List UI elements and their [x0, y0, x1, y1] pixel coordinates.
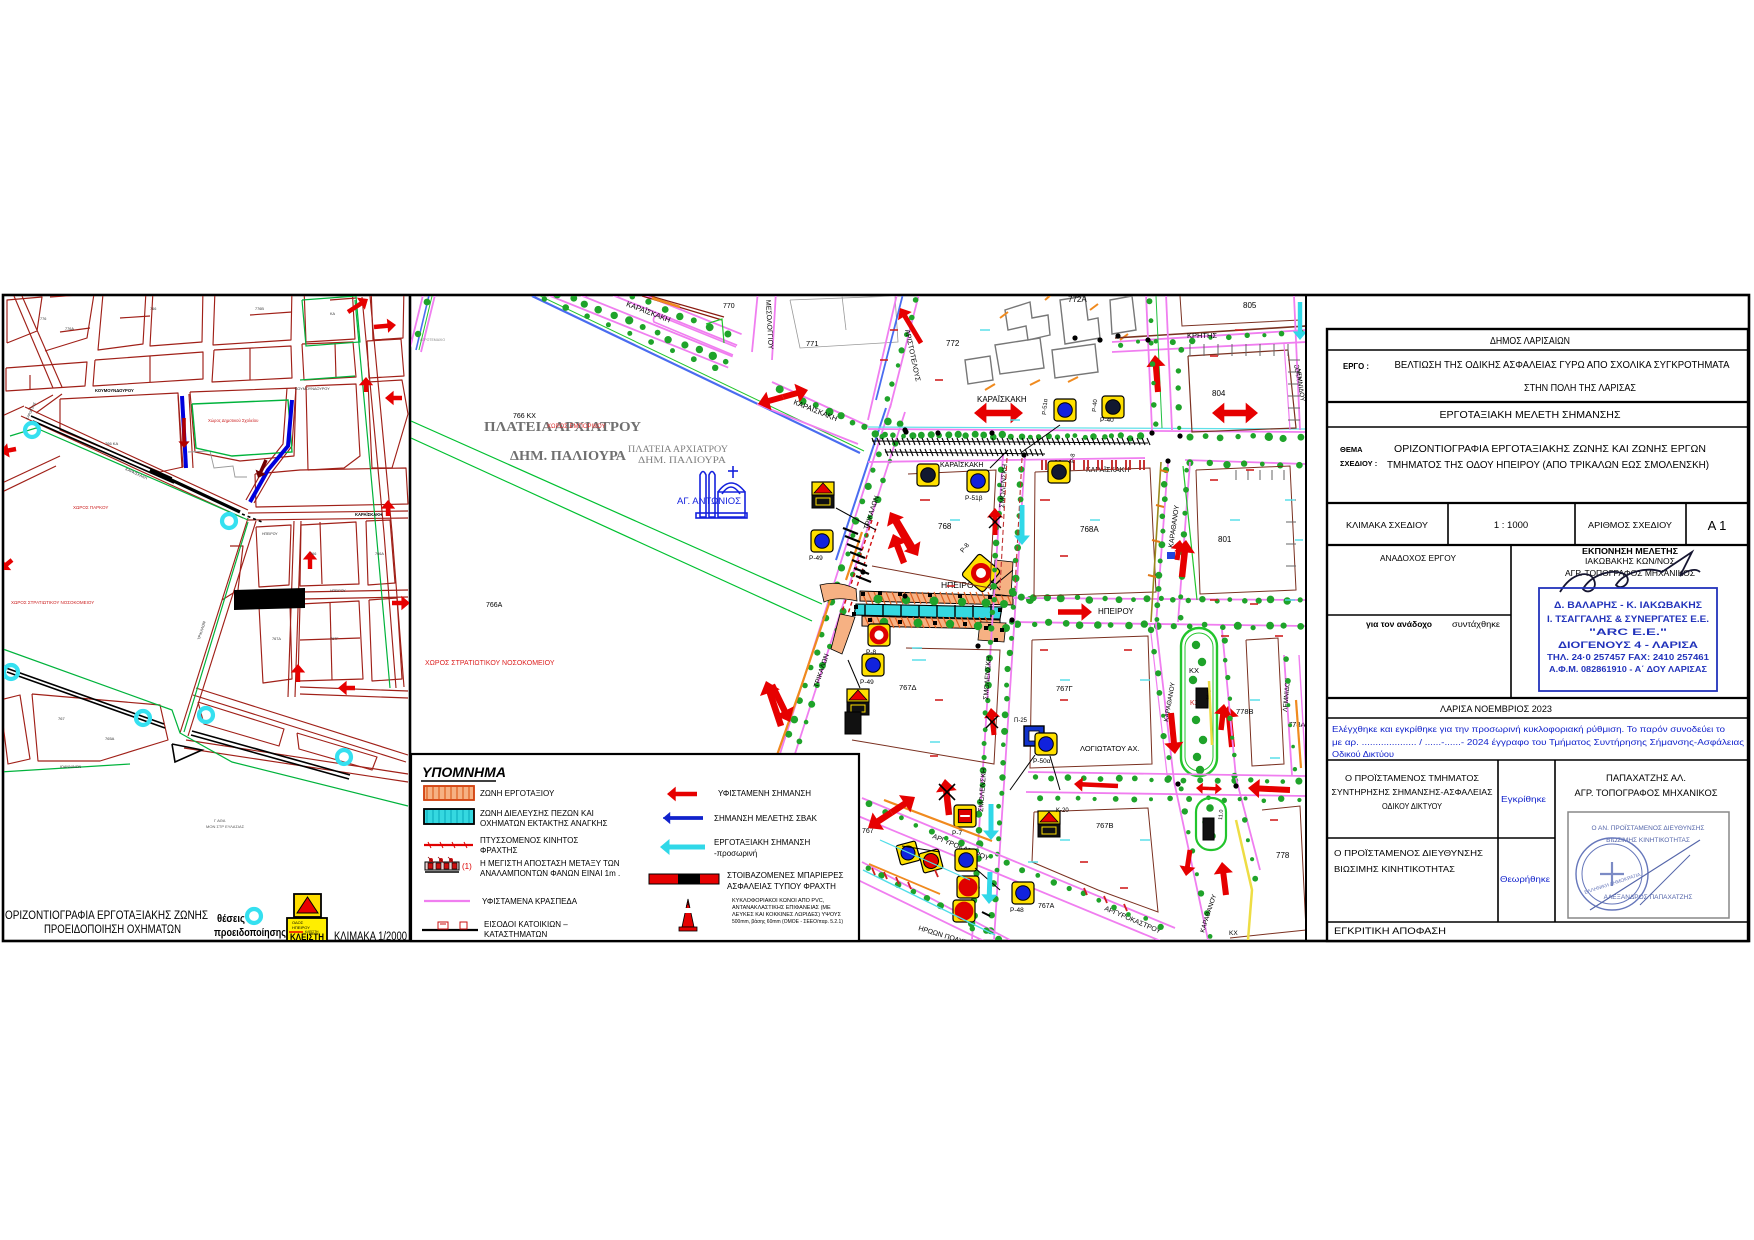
- svg-text:ΜΟΝ ΣΤΡ ΕΥΛΑΣΙΑΣ: ΜΟΝ ΣΤΡ ΕΥΛΑΣΙΑΣ: [206, 824, 245, 829]
- svg-text:Ο ΠΡΟΪΣΤΑΜΕΝΟΣ ΤΜΗΜΑΤΟΣ: Ο ΠΡΟΪΣΤΑΜΕΝΟΣ ΤΜΗΜΑΤΟΣ: [1345, 773, 1479, 783]
- svg-text:θέσεις: θέσεις: [217, 913, 245, 925]
- svg-text:ΠΡΟΕΙΔΟΠΟΙΗΣΗ ΟΧΗΜΑΤΩΝ: ΠΡΟΕΙΔΟΠΟΙΗΣΗ ΟΧΗΜΑΤΩΝ: [44, 922, 181, 936]
- svg-text:ΑΝΑΛΑΜΠΟΝΤΩΝ ΦΑΝΩΝ ΕΙΝΑΙ 1m .: ΑΝΑΛΑΜΠΟΝΤΩΝ ΦΑΝΩΝ ΕΙΝΑΙ 1m .: [480, 869, 620, 878]
- svg-text:ΕΓΚΡΙΤΙΚΗ ΑΠΟΦΑΣΗ: ΕΓΚΡΙΤΙΚΗ ΑΠΟΦΑΣΗ: [1334, 926, 1446, 937]
- svg-text:ΣΤΗΝ ΠΟΛΗ ΤΗΣ ΛΑΡΙΣΑΣ: ΣΤΗΝ ΠΟΛΗ ΤΗΣ ΛΑΡΙΣΑΣ: [1524, 382, 1636, 394]
- svg-text:ΣΧΕΔΙΟΥ :: ΣΧΕΔΙΟΥ :: [1340, 459, 1377, 468]
- svg-text:Ρ-50α: Ρ-50α: [1033, 758, 1051, 765]
- svg-text:ΚΑΡΑΪΣΚΑΚΗ: ΚΑΡΑΪΣΚΑΚΗ: [355, 512, 382, 517]
- svg-text:ΒΙΩΣΙΜΗΣ ΚΙΝΗΤΙΚΟΤΗΤΑΣ: ΒΙΩΣΙΜΗΣ ΚΙΝΗΤΙΚΟΤΗΤΑΣ: [1334, 864, 1455, 874]
- svg-text:Ρ-49: Ρ-49: [809, 555, 823, 562]
- svg-text:ΗΠΕΙΡΟΥ: ΗΠΕΙΡΟΥ: [262, 532, 278, 536]
- svg-text:ΖΩΝΗ ΕΡΓΟΤΑΞΙΟΥ: ΖΩΝΗ ΕΡΓΟΤΑΞΙΟΥ: [480, 789, 555, 798]
- svg-text:ΟΡΙΖΟΝΤΙΟΓΡΑΦΙΑ ΕΡΓΟΤΑΞΙΑΚΗΣ: ΟΡΙΖΟΝΤΙΟΓΡΑΦΙΑ ΕΡΓΟΤΑΞΙΑΚΗΣ ΖΩΝΗΣ: [5, 908, 208, 922]
- svg-text:767: 767: [58, 716, 65, 721]
- svg-text:ΚΧ: ΚΧ: [1229, 930, 1238, 937]
- svg-text:Οδικού Δικτύου: Οδικού Δικτύου: [1332, 749, 1394, 759]
- svg-text:776Α: 776Α: [65, 327, 74, 331]
- svg-text:ΗΠΕΙΡΟΥ: ΗΠΕΙΡΟΥ: [330, 589, 346, 593]
- svg-text:ΚΑΤΑΣΤΗΜΑΤΩΝ: ΚΑΤΑΣΤΗΜΑΤΩΝ: [484, 930, 547, 939]
- svg-text:778Β: 778Β: [1236, 707, 1254, 716]
- svg-text:778: 778: [1276, 851, 1290, 860]
- svg-text:ΟΔΙΚΟΥ ΔΙΚΤΥΟΥ: ΟΔΙΚΟΥ ΔΙΚΤΥΟΥ: [1382, 801, 1442, 811]
- svg-text:766: 766: [310, 552, 316, 556]
- svg-text:ΖΩΝΗ ΔΙΕΛΕΥΣΗΣ ΠΕΖΩΝ ΚΑΙ: ΖΩΝΗ ΔΙΕΛΕΥΣΗΣ ΠΕΖΩΝ ΚΑΙ: [480, 809, 594, 818]
- svg-text:ΑΛΕΞΑΝΔΡΟΣ ΠΑΠΑΧΑΤΖΗΣ: ΑΛΕΞΑΝΔΡΟΣ ΠΑΠΑΧΑΤΖΗΣ: [1604, 894, 1693, 901]
- svg-text:Ρ-51β: Ρ-51β: [965, 495, 983, 502]
- svg-text:ΒΕΛΤΙΩΣΗ ΤΗΣ ΟΔΙΚΗΣ ΑΣΦΑΛΕΙΑΣ: ΒΕΛΤΙΩΣΗ ΤΗΣ ΟΔΙΚΗΣ ΑΣΦΑΛΕΙΑΣ ΓΥΡΩ ΑΠΟ Σ…: [1395, 359, 1730, 371]
- svg-text:Ρ-40: Ρ-40: [1092, 398, 1099, 412]
- svg-text:Α.Φ.Μ. 082861910 - Α΄ ΔΟΥ ΛΑΡ: Α.Φ.Μ. 082861910 - Α΄ ΔΟΥ ΛΑΡΙΣΑΣ: [1549, 665, 1707, 674]
- svg-text:ΑΝΤΑΝΑΚΛΑΣΤΙΚΗΣ ΕΠΙΦΑΝΕΙΑΣ (ΜΕ: ΑΝΤΑΝΑΚΛΑΣΤΙΚΗΣ ΕΠΙΦΑΝΕΙΑΣ (ΜΕ: [732, 905, 831, 911]
- svg-text:ΔΗΜ. ΠΑΛΙΟΥΡΑ: ΔΗΜ. ΠΑΛΙΟΥΡΑ: [638, 455, 727, 465]
- svg-text:767Β: 767Β: [1096, 821, 1114, 830]
- svg-text:ΔΗΜΟΣ ΛΑΡΙΣΑΙΩΝ: ΔΗΜΟΣ ΛΑΡΙΣΑΙΩΝ: [1490, 336, 1570, 347]
- svg-text:767Δ: 767Δ: [899, 683, 917, 692]
- svg-text:ΣΥΝΤΗΡΗΣΗΣ ΣΗΜΑΝΣΗΣ-ΑΣΦΑΛΕΙΑΣ: ΣΥΝΤΗΡΗΣΗΣ ΣΗΜΑΝΣΗΣ-ΑΣΦΑΛΕΙΑΣ: [1332, 787, 1493, 797]
- svg-text:ΕΙΣΟΔΟΙ ΚΑΤΟΙΚΙΩΝ –: ΕΙΣΟΔΟΙ ΚΑΤΟΙΚΙΩΝ –: [484, 920, 568, 929]
- svg-text:προειδοποίησης: προειδοποίησης: [214, 927, 286, 939]
- svg-text:Π-25: Π-25: [1014, 718, 1028, 724]
- svg-text:για τον ανάδοχο: για τον ανάδοχο: [1366, 620, 1432, 629]
- svg-text:766 ΚΑ: 766 ΚΑ: [105, 441, 118, 446]
- svg-text:Ο ΑΝ. ΠΡΟΪΣΤΑΜΕΝΟΣ ΔΙΕΥΘΥΝΣΗΣ: Ο ΑΝ. ΠΡΟΪΣΤΑΜΕΝΟΣ ΔΙΕΥΘΥΝΣΗΣ: [1592, 824, 1705, 832]
- svg-text:776Β: 776Β: [255, 307, 264, 311]
- svg-text:ΧΩΡΟΣ ΣΤΡΑΤΙΩΤΙΚΟΥ ΝΟΣΟΚΟΜΕΙΟΥ: ΧΩΡΟΣ ΣΤΡΑΤΙΩΤΙΚΟΥ ΝΟΣΟΚΟΜΕΙΟΥ: [425, 660, 555, 667]
- svg-text:ΥΦΙΣΤΑΜΕΝΑ ΚΡΑΣΠΕΔΑ: ΥΦΙΣΤΑΜΕΝΑ ΚΡΑΣΠΕΔΑ: [482, 897, 578, 906]
- svg-text:ΚΑΡΑΪΣΚΑΚΗ: ΚΑΡΑΪΣΚΑΚΗ: [940, 461, 984, 469]
- svg-text:805: 805: [1243, 301, 1257, 310]
- svg-text:766Α: 766Α: [486, 602, 503, 609]
- svg-text:500mm, βάσης 60mm (ΟΜΟΕ - ΣΕΕΟ: 500mm, βάσης 60mm (ΟΜΟΕ - ΣΕΕΟ/παρ. 5.2.…: [732, 918, 843, 925]
- svg-text:ΑΡΙΘΜΟΣ ΣΧΕΔΙΟΥ: ΑΡΙΘΜΟΣ ΣΧΕΔΙΟΥ: [1588, 521, 1673, 530]
- svg-text:ΧΩΡΟΣ ΣΤΡΑΤΙΩΤΙΚΟΥ ΝΟΣΟΚΟΜΕΙΟΥ: ΧΩΡΟΣ ΣΤΡΑΤΙΩΤΙΚΟΥ ΝΟΣΟΚΟΜΕΙΟΥ: [11, 600, 94, 605]
- svg-text:765Α: 765Α: [105, 736, 115, 741]
- svg-text:1 : 1000: 1 : 1000: [1494, 520, 1528, 531]
- svg-text:Θεωρήθηκε: Θεωρήθηκε: [1500, 874, 1550, 884]
- svg-text:ΠΑΠΑΧΑΤΖΗΣ ΑΛ.: ΠΑΠΑΧΑΤΖΗΣ ΑΛ.: [1606, 773, 1686, 784]
- svg-text:ΟΡΙΖΟΝΤΙΟΓΡΑΦΙΑ ΕΡΓΟΤΑΞΙΑΚΗΣ: ΟΡΙΖΟΝΤΙΟΓΡΑΦΙΑ ΕΡΓΟΤΑΞΙΑΚΗΣ ΖΩΝΗΣ ΚΑΙ Ζ…: [1394, 444, 1706, 455]
- svg-text:768: 768: [938, 522, 952, 531]
- svg-text:ΑΣΦΑΛΕΙΑΣ ΤΥΠΟΥ ΦΡΑΧΤΗ: ΑΣΦΑΛΕΙΑΣ ΤΥΠΟΥ ΦΡΑΧΤΗ: [727, 882, 836, 891]
- svg-text:Ρ-40: Ρ-40: [1100, 417, 1114, 424]
- svg-text:συντάχθηκε: συντάχθηκε: [1452, 620, 1500, 629]
- svg-text:Η ΜΕΓΙΣΤΗ ΑΠΟΣΤΑΣΗ ΜΕΤΑΞΥ ΤΩΝ: Η ΜΕΓΙΣΤΗ ΑΠΟΣΤΑΣΗ ΜΕΤΑΞΥ ΤΩΝ: [480, 859, 620, 868]
- svg-text:766Α: 766Α: [375, 552, 384, 556]
- svg-text:-προσωρινή: -προσωρινή: [714, 849, 757, 858]
- svg-text:771: 771: [806, 339, 819, 348]
- svg-text:ΚΑΡΑΪΣΚΑΚΗ: ΚΑΡΑΪΣΚΑΚΗ: [977, 395, 1027, 404]
- svg-text:ΧΩΡΟΣ ΠΑΡΚΟΥ: ΧΩΡΟΣ ΠΑΡΚΟΥ: [73, 505, 108, 510]
- svg-text:ΕΡΓΟ :: ΕΡΓΟ :: [1343, 361, 1369, 371]
- svg-text:11.0: 11.0: [1218, 809, 1225, 820]
- svg-text:Εγκρίθηκε: Εγκρίθηκε: [1501, 794, 1546, 804]
- svg-text:ΕΡΓΟΤΑΞΙΑΚΗ ΜΕΛΕΤΗ ΣΗΜΑΝΣΗΣ: ΕΡΓΟΤΑΞΙΑΚΗ ΜΕΛΕΤΗ ΣΗΜΑΝΣΗΣ: [1440, 410, 1621, 421]
- svg-text:ΕΚΠΟΝΗΣΗ ΜΕΛΕΤΗΣ: ΕΚΠΟΝΗΣΗ ΜΕΛΕΤΗΣ: [1582, 546, 1678, 556]
- svg-text:804: 804: [1212, 389, 1226, 398]
- svg-text:Ρ-49: Ρ-49: [860, 679, 874, 686]
- svg-text:ΠΤΥΣΣΟΜΕΝΟΣ ΚΙΝΗΤΟΣ: ΠΤΥΣΣΟΜΕΝΟΣ ΚΙΝΗΤΟΣ: [480, 836, 578, 845]
- svg-text:Α 1: Α 1: [1708, 518, 1727, 533]
- svg-text:767Δ: 767Δ: [272, 637, 281, 641]
- svg-text:ΛΑΡΙΣΑ ΝΟΕΜΒΡΙΟΣ 2023: ΛΑΡΙΣΑ ΝΟΕΜΒΡΙΟΣ 2023: [1440, 704, 1552, 715]
- svg-text:ΔΙΟΓΕΝΟΥΣ 4 - ΛΑΡΙΣΑ: ΔΙΟΓΕΝΟΥΣ 4 - ΛΑΡΙΣΑ: [1558, 640, 1699, 650]
- svg-text:ΚΧ: ΚΧ: [1189, 666, 1199, 675]
- svg-text:Γ ΑΘΑ: Γ ΑΘΑ: [214, 818, 226, 823]
- svg-text:766: 766: [150, 307, 156, 311]
- svg-text:ΑΓΡΟΤΕΜΑΧΙΟ: ΑΓΡΟΤΕΜΑΧΙΟ: [420, 338, 445, 342]
- svg-text:ΧΩΡΟΣ ΕΜΠΟΡΙΚΟΥ: ΧΩΡΟΣ ΕΜΠΟΡΙΚΟΥ: [547, 424, 606, 430]
- svg-text:ΑΝΑΔΟΧΟΣ ΕΡΓΟΥ: ΑΝΑΔΟΧΟΣ ΕΡΓΟΥ: [1380, 553, 1456, 563]
- svg-text:767: 767: [862, 828, 874, 835]
- svg-text:768Α: 768Α: [1080, 525, 1099, 534]
- svg-text:ΤΗΛ. 24·0 257457 FAX: 2410 2: ΤΗΛ. 24·0 257457 FAX: 2410 257461: [1547, 653, 1710, 662]
- svg-text:767Α: 767Α: [1038, 903, 1055, 910]
- svg-text:ΚΟΥΜΟΥΝΔΟΥΡΟΥ: ΚΟΥΜΟΥΝΔΟΥΡΟΥ: [95, 388, 134, 393]
- svg-text:ΙΑΚΩΒΑΚΗΣ ΚΩΝ/ΝΟΣ: ΙΑΚΩΒΑΚΗΣ ΚΩΝ/ΝΟΣ: [1585, 557, 1675, 566]
- svg-text:ΦΡΑΧΤΗΣ: ΦΡΑΧΤΗΣ: [480, 846, 517, 855]
- svg-text:ΕΡΓΟΤΑΞΙΑΚΗ ΣΗΜΑΝΣΗ: ΕΡΓΟΤΑΞΙΑΚΗ ΣΗΜΑΝΣΗ: [714, 838, 810, 847]
- svg-text:801: 801: [1218, 535, 1232, 544]
- svg-text:ΔΗΜ. ΠΑΛΙΟΥΡΑ: ΔΗΜ. ΠΑΛΙΟΥΡΑ: [510, 448, 626, 463]
- svg-text:ΣΤΟΙΒΑΖΟΜΕΝΕΣ ΜΠΑΡΙΕΡΕΣ: ΣΤΟΙΒΑΖΟΜΕΝΕΣ ΜΠΑΡΙΕΡΕΣ: [727, 871, 844, 880]
- svg-text:ΚΡΗΤΗΣ: ΚΡΗΤΗΣ: [1187, 331, 1217, 340]
- svg-text:767Γ: 767Γ: [1056, 684, 1073, 693]
- svg-text:Ρ-8: Ρ-8: [1070, 453, 1077, 463]
- svg-text:ΚΑ: ΚΑ: [330, 312, 336, 316]
- svg-text:ΗΠΕΙΡΟΥ: ΗΠΕΙΡΟΥ: [1098, 607, 1134, 616]
- svg-text:ΑΓΡ. ΤΟΠΟΓΡΑΦΟΣ ΜΗΧΑΝΙΚΟΣ: ΑΓΡ. ΤΟΠΟΓΡΑΦΟΣ ΜΗΧΑΝΙΚΟΣ: [1575, 788, 1718, 799]
- svg-text:ΥΦΙΣΤΑΜΕΝΗ ΣΗΜΑΝΣΗ: ΥΦΙΣΤΑΜΕΝΗ ΣΗΜΑΝΣΗ: [718, 789, 811, 798]
- svg-text:με αρ. .................... /: με αρ. .................... / ......-...…: [1332, 737, 1744, 747]
- svg-text:ΘΕΜΑ: ΘΕΜΑ: [1340, 445, 1363, 454]
- svg-text:Χώρος Δημοτικού Σχολείου: Χώρος Δημοτικού Σχολείου: [208, 418, 259, 423]
- svg-text:Ελέγχθηκε και εγκρίθηκε για τη: Ελέγχθηκε και εγκρίθηκε για την προσωριν…: [1332, 724, 1725, 734]
- svg-text:ΛΕΥΚΕΣ ΚΑΙ ΚΟΚΚΙΝΕΣ ΛΩΡΙΔΕΣ) Υ: ΛΕΥΚΕΣ ΚΑΙ ΚΟΚΚΙΝΕΣ ΛΩΡΙΔΕΣ) ΥΨΟΥΣ: [732, 912, 842, 918]
- svg-text:ΠΛΑΤΕΙΑ ΑΡΧΙΑΤΡΟΥ: ΠΛΑΤΕΙΑ ΑΡΧΙΑΤΡΟΥ: [628, 444, 729, 454]
- svg-text:ΚΟΥΜΟΥΝΔΟΥΡΟΥ: ΚΟΥΜΟΥΝΔΟΥΡΟΥ: [295, 387, 330, 391]
- svg-text:ΥΠΟΜΝΗΜΑ: ΥΠΟΜΝΗΜΑ: [422, 764, 506, 780]
- svg-text:ΣΗΜΑΝΣΗ ΜΕΛΕΤΗΣ ΣΒΑΚ: ΣΗΜΑΝΣΗ ΜΕΛΕΤΗΣ ΣΒΑΚ: [714, 814, 818, 823]
- svg-text:772Α: 772Α: [1068, 295, 1087, 304]
- svg-text:ΤΜΗΜΑΤΟΣ ΤΗΣ ΟΔΟΥ ΗΠΕΙΡΟΥ (Α: ΤΜΗΜΑΤΟΣ ΤΗΣ ΟΔΟΥ ΗΠΕΙΡΟΥ (ΑΠΟ ΤΡΙΚΑΛΩΝ …: [1387, 460, 1709, 471]
- svg-text:ΚΛΙΜΑΚΑ ΣΧΕΔΙΟΥ: ΚΛΙΜΑΚΑ ΣΧΕΔΙΟΥ: [1346, 521, 1429, 530]
- svg-text:Ο ΠΡΟΪΣΤΑΜΕΝΟΣ ΔΙΕΥΘΥΝΣΗΣ: Ο ΠΡΟΪΣΤΑΜΕΝΟΣ ΔΙΕΥΘΥΝΣΗΣ: [1334, 848, 1483, 858]
- svg-text:"ARC Ε.Ε.": "ARC Ε.Ε.": [1589, 627, 1667, 637]
- svg-text:776: 776: [40, 317, 46, 321]
- svg-text:Ρ-48: Ρ-48: [1010, 907, 1024, 914]
- svg-text:(1): (1): [462, 862, 472, 871]
- svg-text:Ρ-7: Ρ-7: [952, 830, 963, 837]
- svg-text:Ι. ΤΣΑΓΓΑΛΗΣ & ΣΥΝΕΡΓΑΤΕΣ: Ι. ΤΣΑΓΓΑΛΗΣ & ΣΥΝΕΡΓΑΤΕΣ Ε.Ε.: [1547, 614, 1709, 624]
- svg-text:772: 772: [946, 339, 960, 348]
- svg-text:770: 770: [723, 303, 735, 310]
- svg-text:ΛΟΓΙΩΤΑΤΟΥ ΑΧ.: ΛΟΓΙΩΤΑΤΟΥ ΑΧ.: [1080, 744, 1140, 753]
- svg-text:ΚΥΚΛΟΦΟΡΙΑΚΟΙ ΚΩΝΟΙ ΑΠΟ PVC,: ΚΥΚΛΟΦΟΡΙΑΚΟΙ ΚΩΝΟΙ ΑΠΟ PVC,: [732, 898, 825, 904]
- svg-text:ΟΧΗΜΑΤΩΝ ΕΚΤΑΚΤΗΣ ΑΝΑΓΚΗΣ: ΟΧΗΜΑΤΩΝ ΕΚΤΑΚΤΗΣ ΑΝΑΓΚΗΣ: [480, 819, 607, 828]
- svg-text:ΙΩΑΝΝΙΝΩΝ: ΙΩΑΝΝΙΝΩΝ: [60, 765, 82, 769]
- svg-text:Κ-20: Κ-20: [1056, 808, 1069, 814]
- svg-text:Δ. ΒΑΛΑΡΗΣ - Κ. ΙΑΚΩΒΑΚΗΣ: Δ. ΒΑΛΑΡΗΣ - Κ. ΙΑΚΩΒΑΚΗΣ: [1554, 600, 1703, 610]
- svg-text:ΑΓ. ΑΝΤΩΝΙΟΣ: ΑΓ. ΑΝΤΩΝΙΟΣ: [677, 496, 741, 507]
- svg-text:767Γ: 767Γ: [330, 637, 338, 641]
